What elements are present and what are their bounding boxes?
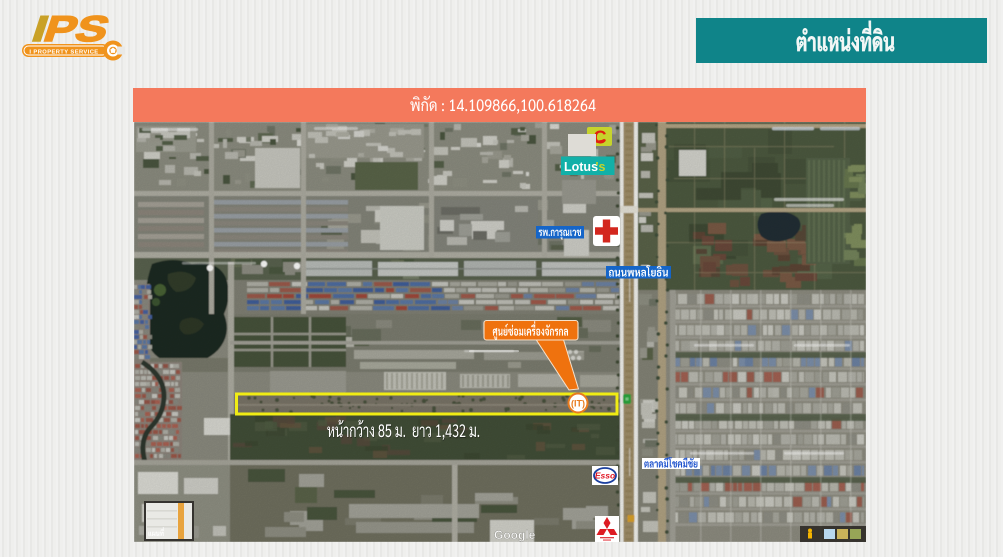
svg-text:(IT): (IT) <box>571 399 585 409</box>
svg-text:Esso: Esso <box>595 471 615 481</box>
svg-text:'s: 's <box>596 160 606 174</box>
svg-text:PS: PS <box>39 9 115 50</box>
svg-text:I PROPERTY SERVICE: I PROPERTY SERVICE <box>29 49 98 55</box>
svg-text:Google: Google <box>494 528 536 542</box>
svg-text:Lotus: Lotus <box>564 160 598 174</box>
